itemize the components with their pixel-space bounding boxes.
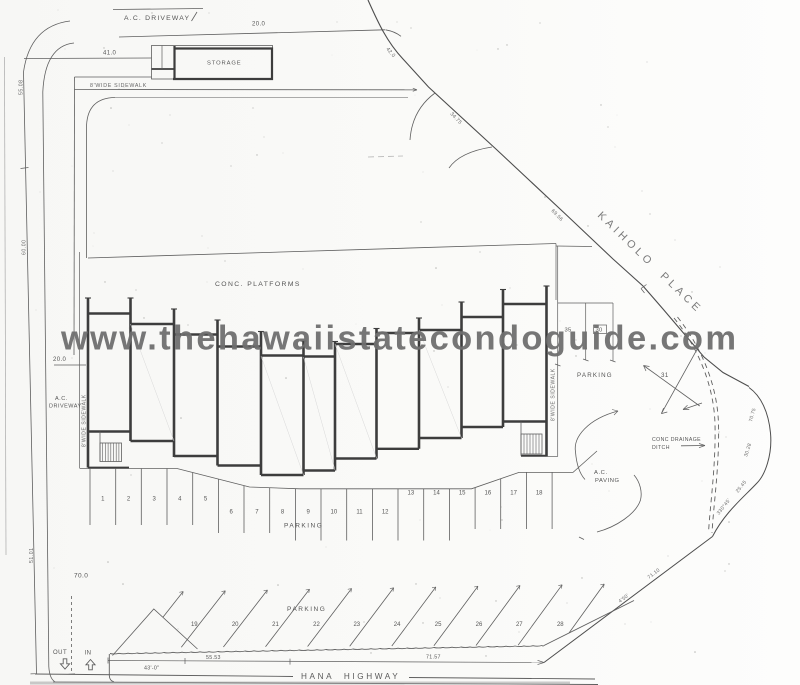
svg-text:12: 12	[382, 510, 389, 516]
svg-text:60.00: 60.00	[22, 240, 28, 255]
svg-text:13: 13	[408, 491, 415, 497]
svg-text:A.C.: A.C.	[594, 470, 608, 476]
svg-text:www.thehawaiistatecondoguide.c: www.thehawaiistatecondoguide.com	[60, 320, 736, 358]
svg-text:51.01: 51.01	[29, 548, 35, 563]
svg-text:A.C. DRIVEWAY: A.C. DRIVEWAY	[124, 15, 190, 22]
svg-text:OUT: OUT	[53, 650, 67, 656]
svg-text:PARKING: PARKING	[577, 372, 613, 379]
svg-text:11: 11	[356, 510, 363, 516]
svg-text:18: 18	[536, 491, 543, 497]
svg-text:71.57: 71.57	[426, 655, 441, 661]
svg-text:27: 27	[516, 622, 523, 628]
svg-text:28: 28	[557, 622, 564, 628]
svg-text:41.0: 41.0	[103, 51, 117, 57]
svg-text:8'WIDE SIDEWALK: 8'WIDE SIDEWALK	[82, 394, 88, 447]
svg-text:PAVING: PAVING	[595, 478, 620, 484]
svg-text:31: 31	[661, 372, 669, 379]
svg-text:14: 14	[433, 491, 440, 497]
svg-text:20.0: 20.0	[53, 357, 67, 363]
svg-text:70.0: 70.0	[74, 573, 88, 580]
svg-text:IN: IN	[85, 651, 92, 657]
svg-text:19: 19	[191, 622, 198, 628]
svg-text:21: 21	[272, 622, 279, 628]
svg-text:17: 17	[510, 491, 517, 497]
svg-text:A.C.: A.C.	[55, 396, 68, 402]
svg-text:PARKING: PARKING	[287, 606, 326, 613]
svg-text:DRIVEWAY: DRIVEWAY	[49, 404, 82, 410]
svg-text:16: 16	[485, 491, 492, 497]
svg-text:CONC DRAINAGE: CONC DRAINAGE	[652, 437, 701, 443]
svg-text:24: 24	[394, 622, 401, 628]
svg-text:15: 15	[459, 491, 466, 497]
svg-text:10: 10	[331, 510, 338, 516]
svg-text:PARKING: PARKING	[284, 523, 323, 530]
svg-text:23: 23	[353, 622, 360, 628]
svg-text:25: 25	[435, 622, 442, 628]
svg-text:CONC. PLATFORMS: CONC. PLATFORMS	[215, 281, 301, 288]
svg-text:26: 26	[476, 622, 483, 628]
svg-text:HANA HIGHWAY: HANA HIGHWAY	[301, 672, 400, 681]
svg-text:8'WIDE SIDEWALK: 8'WIDE SIDEWALK	[90, 83, 147, 89]
svg-text:43'-0": 43'-0"	[144, 666, 159, 672]
svg-text:22: 22	[313, 622, 320, 628]
svg-text:20.0: 20.0	[252, 22, 266, 28]
svg-text:55.08: 55.08	[19, 80, 25, 95]
svg-text:55.53: 55.53	[206, 655, 221, 661]
svg-text:STORAGE: STORAGE	[207, 61, 242, 67]
svg-text:20: 20	[232, 622, 239, 628]
svg-text:8'WIDE SIDEWALK: 8'WIDE SIDEWALK	[551, 368, 557, 421]
svg-text:DITCH: DITCH	[652, 445, 670, 451]
